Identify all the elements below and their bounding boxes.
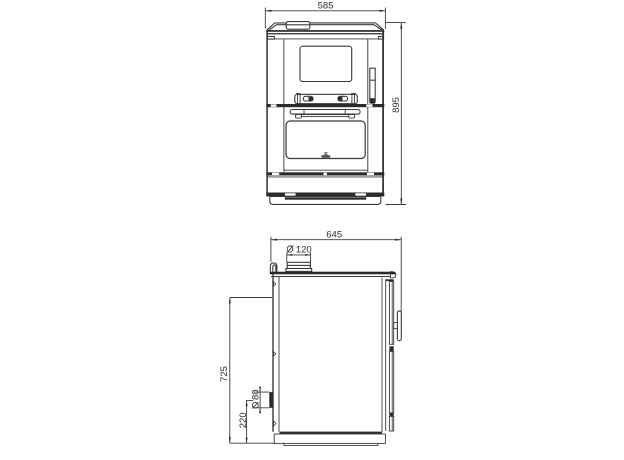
svg-text:120: 120: [296, 245, 312, 256]
svg-text:220: 220: [238, 412, 249, 428]
svg-text:725: 725: [219, 366, 230, 382]
svg-text:585: 585: [318, 1, 334, 12]
svg-text:895: 895: [391, 97, 402, 113]
svg-text:80: 80: [251, 389, 262, 400]
svg-text:645: 645: [326, 230, 342, 241]
